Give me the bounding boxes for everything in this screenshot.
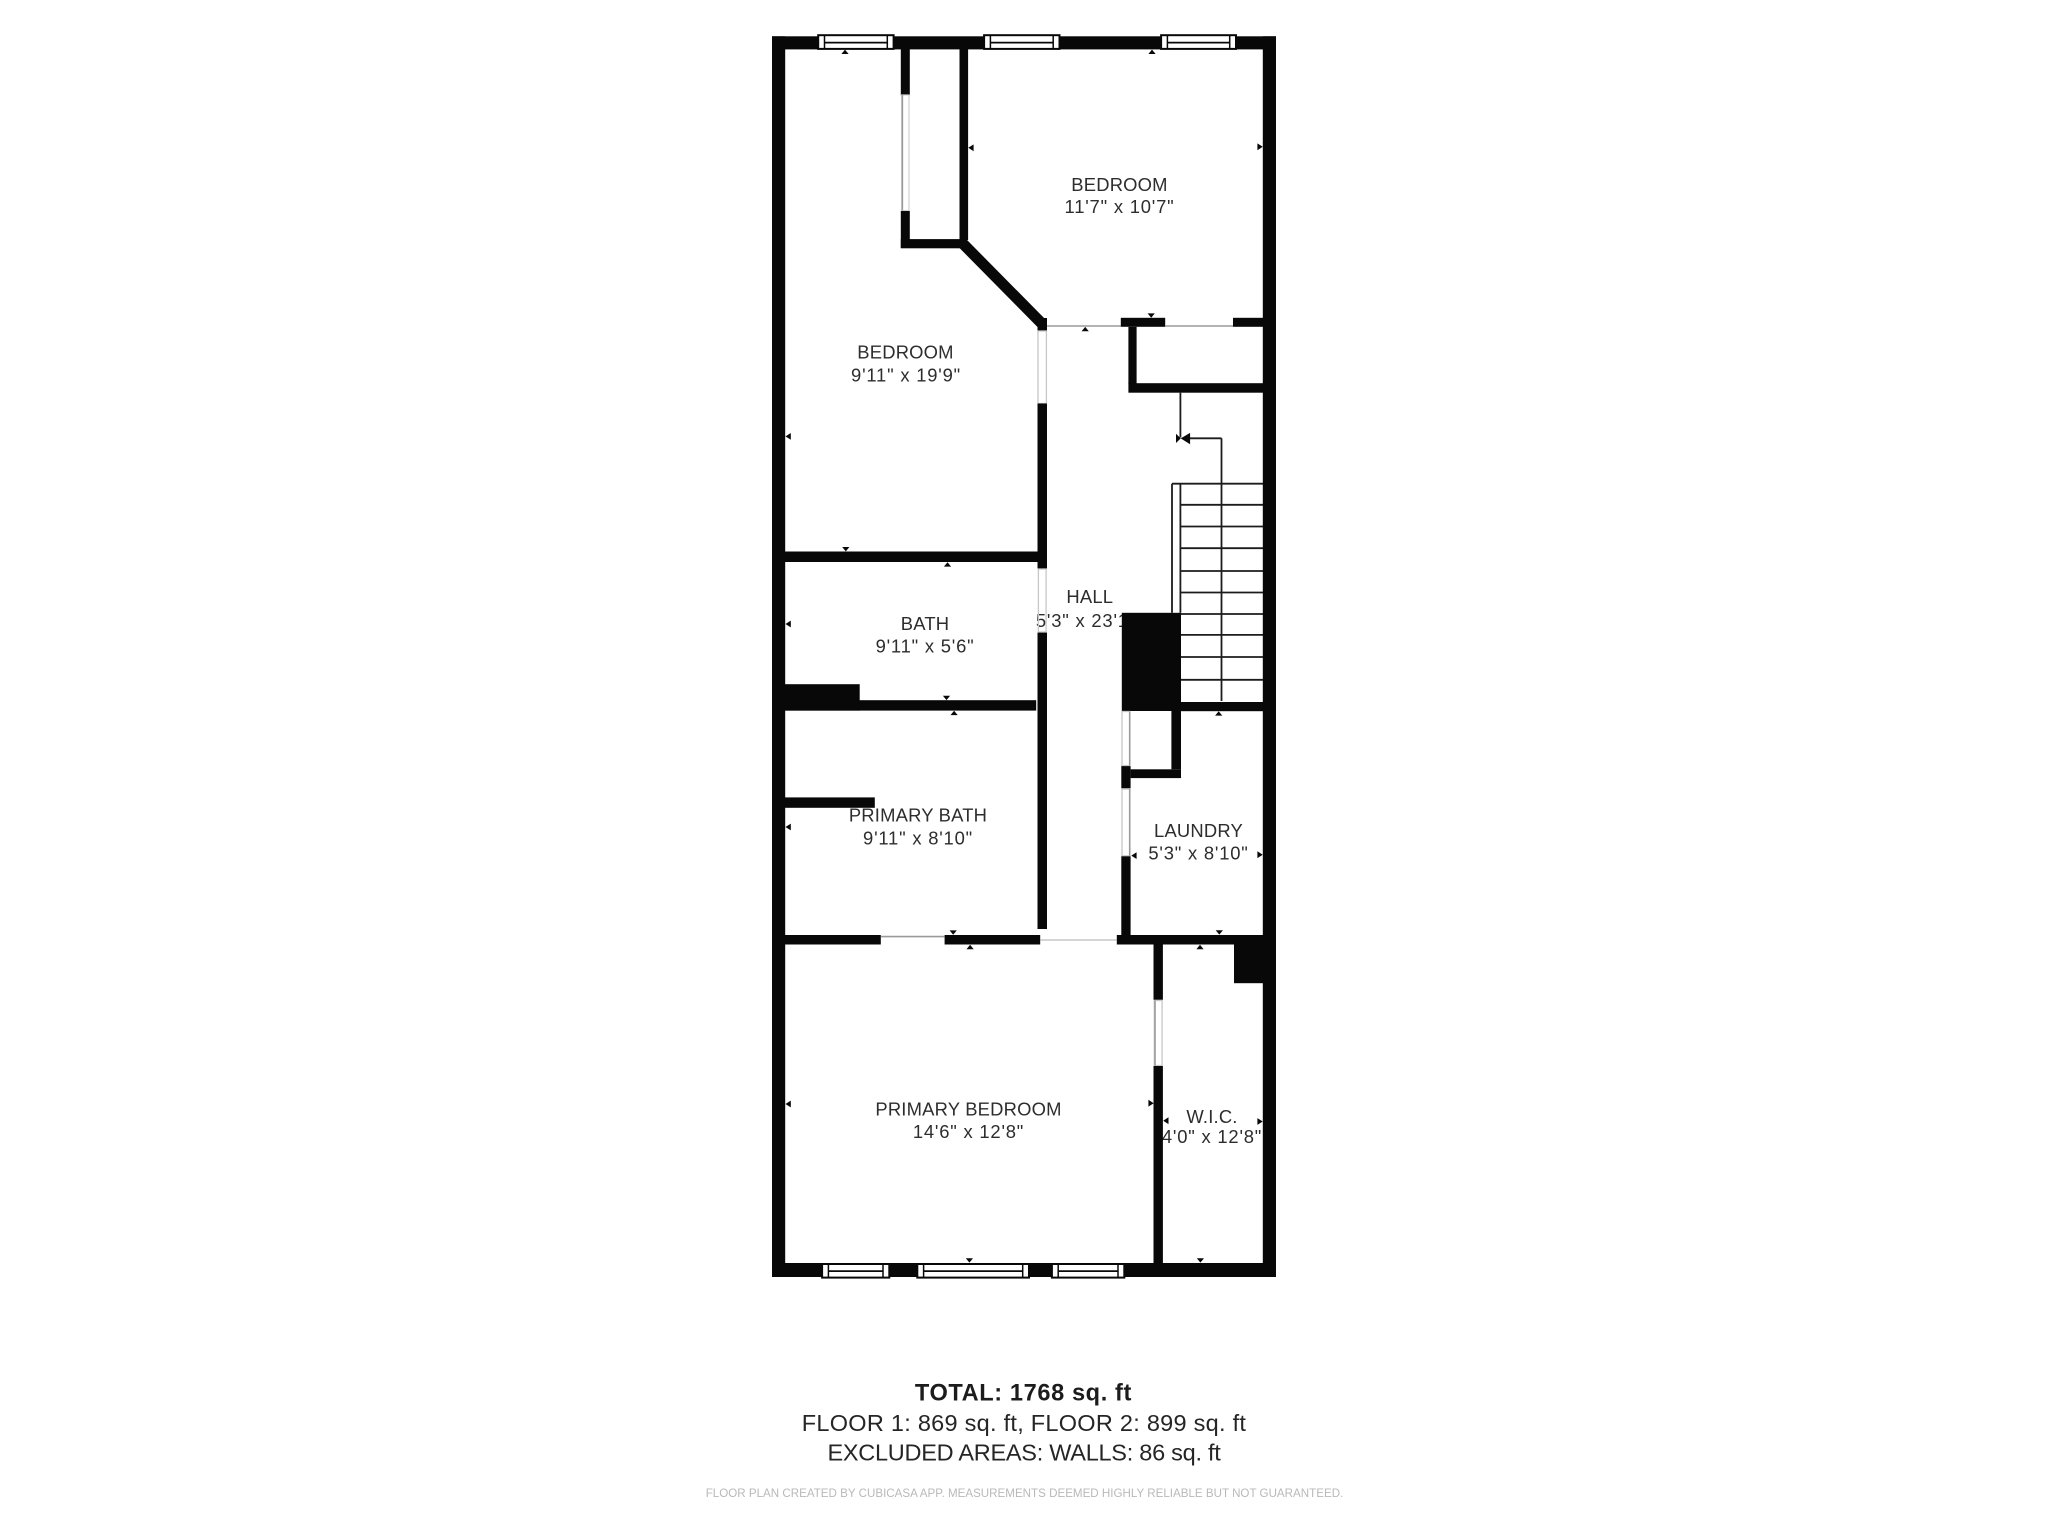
svg-text:EXCLUDED AREAS: WALLS: 86 sq.: EXCLUDED AREAS: WALLS: 86 sq. ft — [827, 1440, 1221, 1466]
svg-text:PRIMARY BATH: PRIMARY BATH — [849, 805, 987, 826]
svg-text:9'11" x 8'10": 9'11" x 8'10" — [863, 827, 973, 848]
svg-text:BEDROOM: BEDROOM — [857, 341, 953, 362]
svg-text:HALL: HALL — [1066, 586, 1113, 607]
svg-text:PRIMARY BEDROOM: PRIMARY BEDROOM — [875, 1098, 1061, 1119]
svg-text:FLOOR PLAN CREATED BY CUBICASA: FLOOR PLAN CREATED BY CUBICASA APP. MEAS… — [706, 1487, 1344, 1500]
svg-text:5'3" x 23'1": 5'3" x 23'1" — [1036, 610, 1136, 631]
svg-text:14'6" x 12'8": 14'6" x 12'8" — [913, 1121, 1024, 1142]
svg-text:FLOOR 1: 869 sq. ft, FLOOR 2:: FLOOR 1: 869 sq. ft, FLOOR 2: 899 sq. ft — [802, 1410, 1247, 1436]
svg-text:9'11" x 19'9": 9'11" x 19'9" — [851, 364, 961, 385]
svg-text:BATH: BATH — [901, 613, 949, 634]
svg-text:9'11" x 5'6": 9'11" x 5'6" — [876, 635, 975, 656]
svg-text:TOTAL: 1768 sq. ft: TOTAL: 1768 sq. ft — [915, 1381, 1132, 1407]
svg-text:W.I.C.: W.I.C. — [1186, 1106, 1237, 1127]
svg-text:LAUNDRY: LAUNDRY — [1154, 820, 1243, 841]
svg-text:5'3" x 8'10": 5'3" x 8'10" — [1148, 842, 1248, 863]
svg-text:BEDROOM: BEDROOM — [1071, 174, 1167, 195]
svg-text:11'7" x 10'7": 11'7" x 10'7" — [1065, 196, 1175, 217]
svg-text:4'0" x 12'8": 4'0" x 12'8" — [1162, 1126, 1262, 1147]
